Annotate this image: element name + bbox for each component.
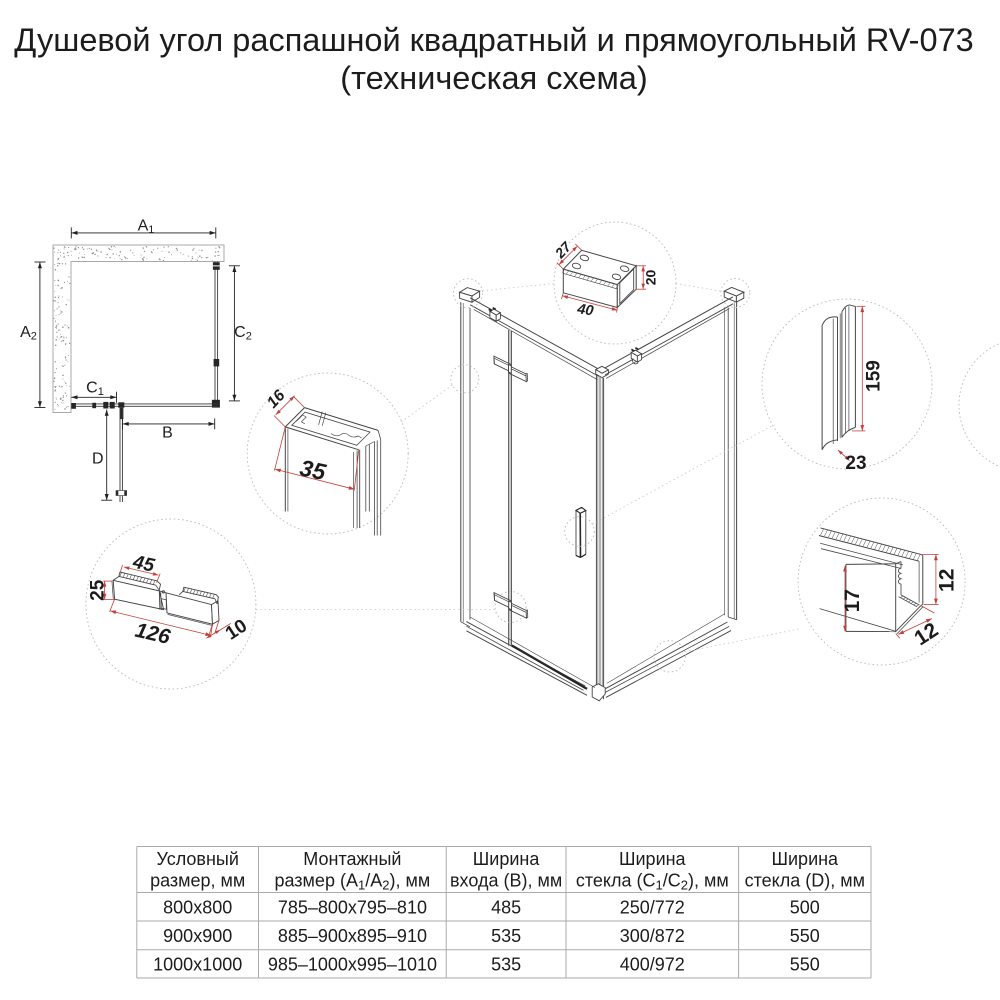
svg-text:300/872: 300/872 <box>620 926 685 946</box>
svg-text:250/772: 250/772 <box>620 898 685 918</box>
svg-text:485: 485 <box>491 898 521 918</box>
svg-text:535: 535 <box>491 926 521 946</box>
svg-text:500: 500 <box>790 898 820 918</box>
svg-text:входа (В), мм: входа (В), мм <box>450 871 562 891</box>
svg-text:25: 25 <box>87 579 108 601</box>
svg-text:550: 550 <box>790 926 820 946</box>
svg-text:550: 550 <box>790 955 820 975</box>
svg-text:1000х1000: 1000х1000 <box>153 955 242 975</box>
svg-text:Ширина: Ширина <box>772 849 840 869</box>
svg-text:400/972: 400/972 <box>620 955 685 975</box>
svg-text:20: 20 <box>643 270 659 286</box>
svg-text:885–900х895–910: 885–900х895–910 <box>278 926 427 946</box>
svg-text:Монтажный: Монтажный <box>303 849 401 869</box>
svg-text:17: 17 <box>841 589 864 612</box>
svg-text:Ширина: Ширина <box>473 849 541 869</box>
svg-text:800х800: 800х800 <box>163 898 232 918</box>
svg-text:12: 12 <box>936 569 959 592</box>
svg-text:159: 159 <box>863 360 884 392</box>
svg-text:535: 535 <box>491 955 521 975</box>
svg-text:стекла (D), мм: стекла (D), мм <box>745 871 865 891</box>
svg-text:Ширина: Ширина <box>619 849 687 869</box>
svg-text:23: 23 <box>845 453 866 474</box>
svg-text:стекла (С1/С2), мм: стекла (С1/С2), мм <box>576 871 729 893</box>
svg-text:785–800х795–810: 785–800х795–810 <box>278 898 427 918</box>
svg-text:размер (А1/А2), мм: размер (А1/А2), мм <box>274 871 430 893</box>
svg-text:900х900: 900х900 <box>163 926 232 946</box>
svg-text:размер, мм: размер, мм <box>150 871 245 891</box>
svg-text:D: D <box>92 451 104 468</box>
svg-text:B: B <box>162 425 173 442</box>
svg-text:Условный: Условный <box>156 849 238 869</box>
svg-text:985–1000х995–1010: 985–1000х995–1010 <box>268 955 437 975</box>
svg-text:Душевой угол распашной квадрат: Душевой угол распашной квадратный и прям… <box>14 22 973 58</box>
svg-text:40: 40 <box>575 301 594 319</box>
svg-text:(техническая схема): (техническая схема) <box>340 60 647 96</box>
